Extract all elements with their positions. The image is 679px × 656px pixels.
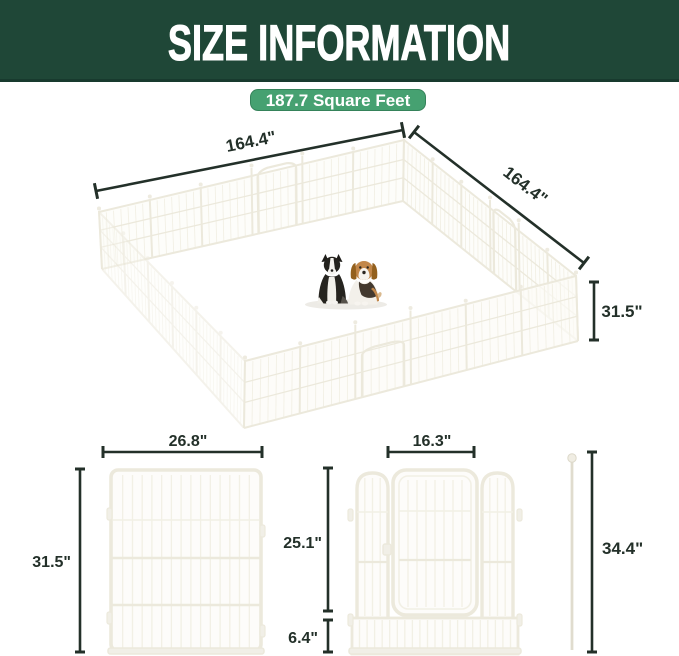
- svg-text:164.4": 164.4": [500, 163, 552, 209]
- svg-text:16.3": 16.3": [413, 433, 452, 450]
- svg-text:6.4": 6.4": [288, 630, 318, 647]
- svg-text:25.1": 25.1": [283, 535, 322, 552]
- svg-text:164.4": 164.4": [224, 127, 277, 156]
- svg-text:26.8": 26.8": [169, 433, 208, 450]
- svg-text:34.4": 34.4": [602, 539, 643, 558]
- svg-text:31.5": 31.5": [601, 302, 642, 321]
- svg-text:31.5": 31.5": [32, 554, 71, 571]
